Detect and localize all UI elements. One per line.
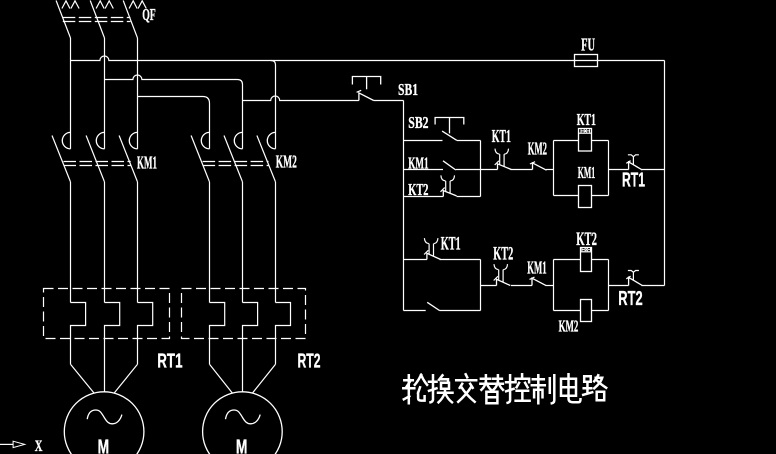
svg-text:QF: QF	[142, 5, 156, 24]
svg-text:X: X	[35, 438, 43, 454]
svg-text:SB2: SB2	[408, 113, 428, 132]
svg-text:KT2: KT2	[408, 180, 428, 199]
svg-text:KM2: KM2	[528, 139, 547, 159]
svg-text:FU: FU	[581, 34, 595, 54]
svg-text:RT2: RT2	[618, 288, 642, 310]
svg-text:KT2: KT2	[493, 243, 513, 264]
svg-text:KT1: KT1	[441, 234, 461, 255]
svg-text:KT1: KT1	[492, 126, 511, 146]
svg-text:KM1: KM1	[527, 257, 546, 277]
svg-text:KM1: KM1	[137, 152, 157, 172]
svg-text:RT2: RT2	[298, 351, 321, 373]
svg-text:KM1: KM1	[408, 154, 428, 173]
svg-text:KM2: KM2	[276, 152, 297, 172]
svg-text:KT1: KT1	[577, 110, 596, 129]
svg-text:KT2: KT2	[576, 229, 597, 250]
svg-text:RT1: RT1	[622, 169, 645, 191]
svg-text:SB1: SB1	[398, 80, 418, 99]
svg-text:RT1: RT1	[157, 351, 182, 373]
svg-text:KM2: KM2	[559, 317, 579, 336]
svg-text:KM1: KM1	[578, 163, 596, 182]
svg-text:M: M	[236, 437, 248, 454]
svg-text:M: M	[98, 437, 110, 454]
